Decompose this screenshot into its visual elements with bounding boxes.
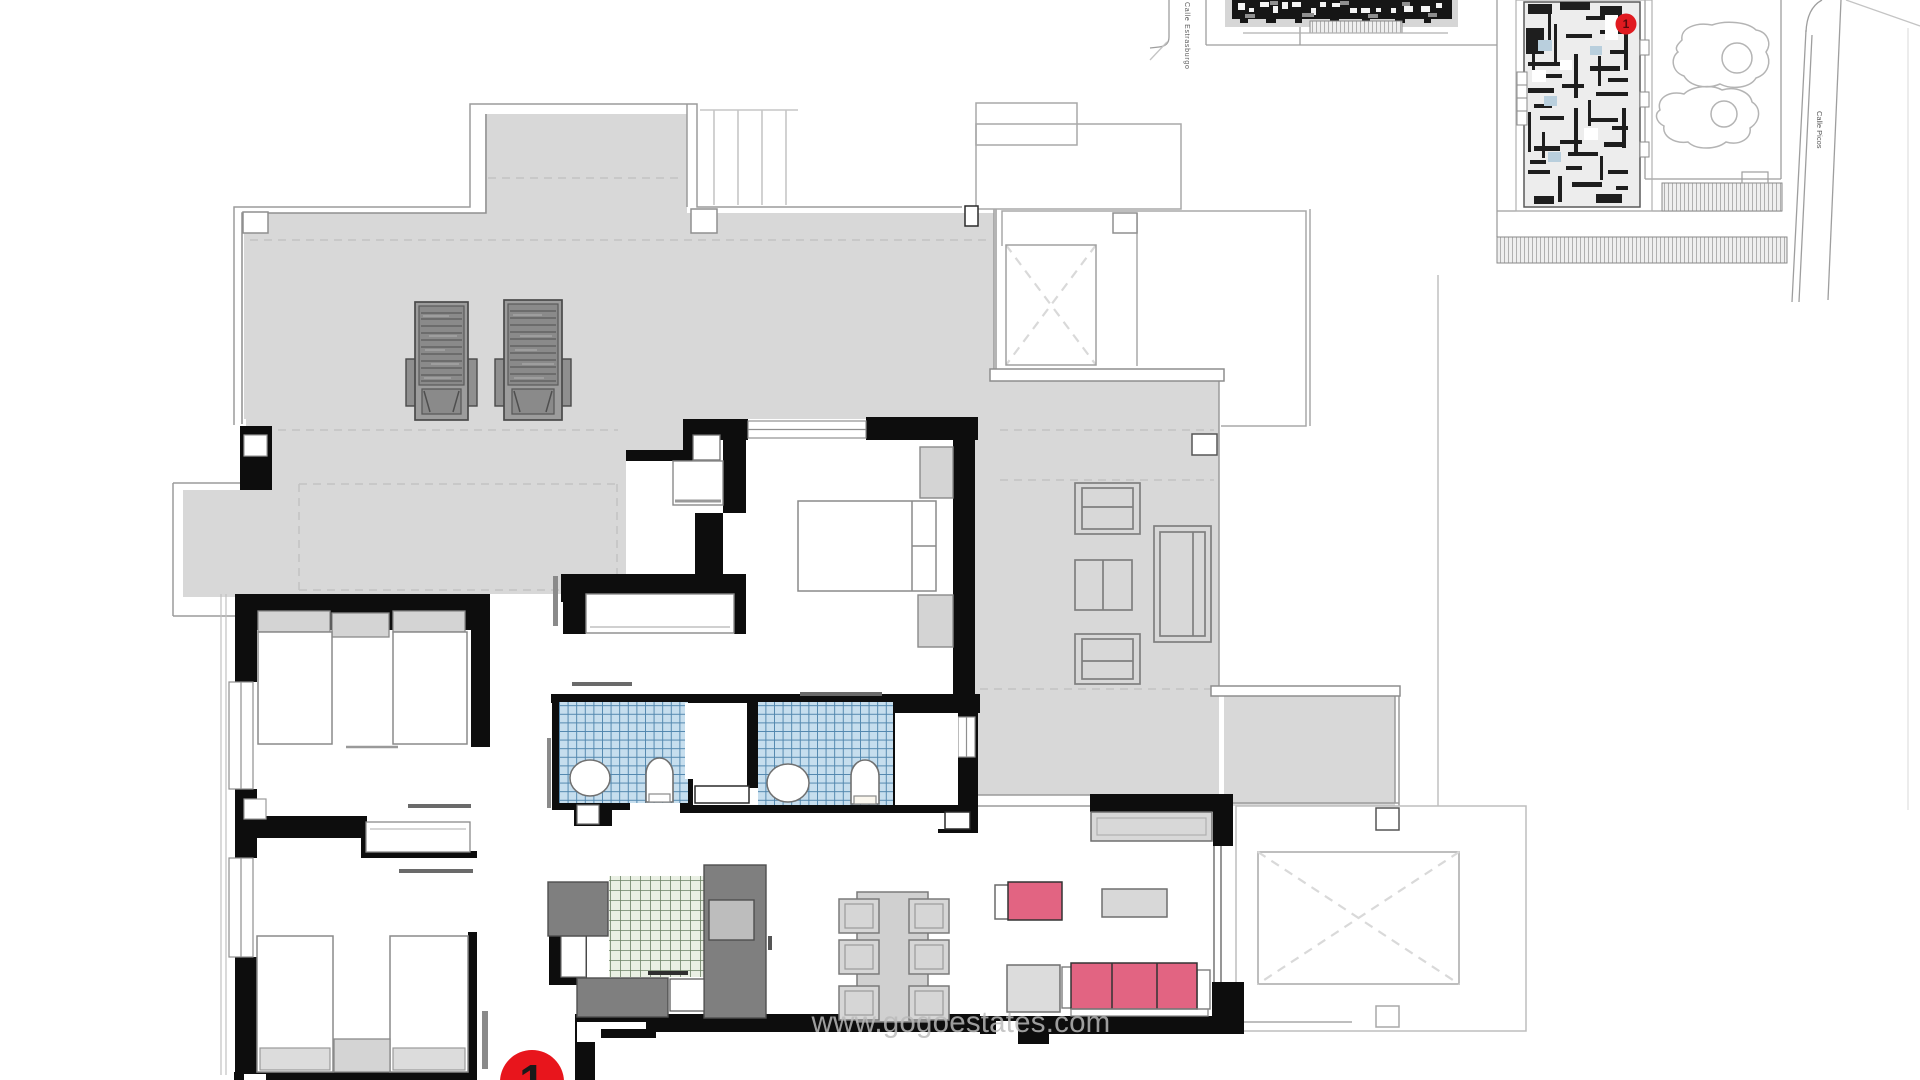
- svg-text:www.gogoestates.com: www.gogoestates.com: [811, 1006, 1111, 1039]
- svg-text:Calle Picos: Calle Picos: [1815, 111, 1824, 149]
- svg-text:Calle Estrasburgo: Calle Estrasburgo: [1183, 2, 1190, 70]
- svg-text:1: 1: [1623, 17, 1630, 31]
- svg-text:1: 1: [519, 1055, 545, 1080]
